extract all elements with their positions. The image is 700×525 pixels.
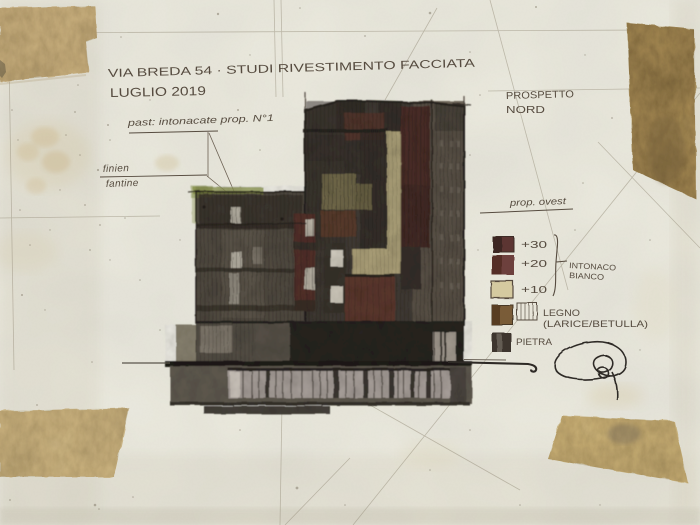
svg-text:finien: finien [103, 163, 130, 175]
svg-text:+20: +20 [521, 259, 548, 270]
svg-text:PIETRA: PIETRA [516, 337, 552, 347]
svg-text:prop. ovest: prop. ovest [509, 196, 567, 209]
svg-text:LEGNO: LEGNO [543, 308, 580, 318]
svg-text:(LARICE/BETULLA): (LARICE/BETULLA) [543, 319, 648, 329]
svg-text:NORD: NORD [506, 105, 545, 116]
svg-text:+30: +30 [521, 240, 548, 251]
svg-text:fantine: fantine [106, 178, 139, 190]
svg-text:PROSPETTO: PROSPETTO [506, 89, 575, 102]
svg-text:BIANCO: BIANCO [569, 271, 604, 282]
svg-text:LUGLIO 2019: LUGLIO 2019 [110, 84, 206, 100]
svg-text:+10: +10 [521, 285, 548, 296]
